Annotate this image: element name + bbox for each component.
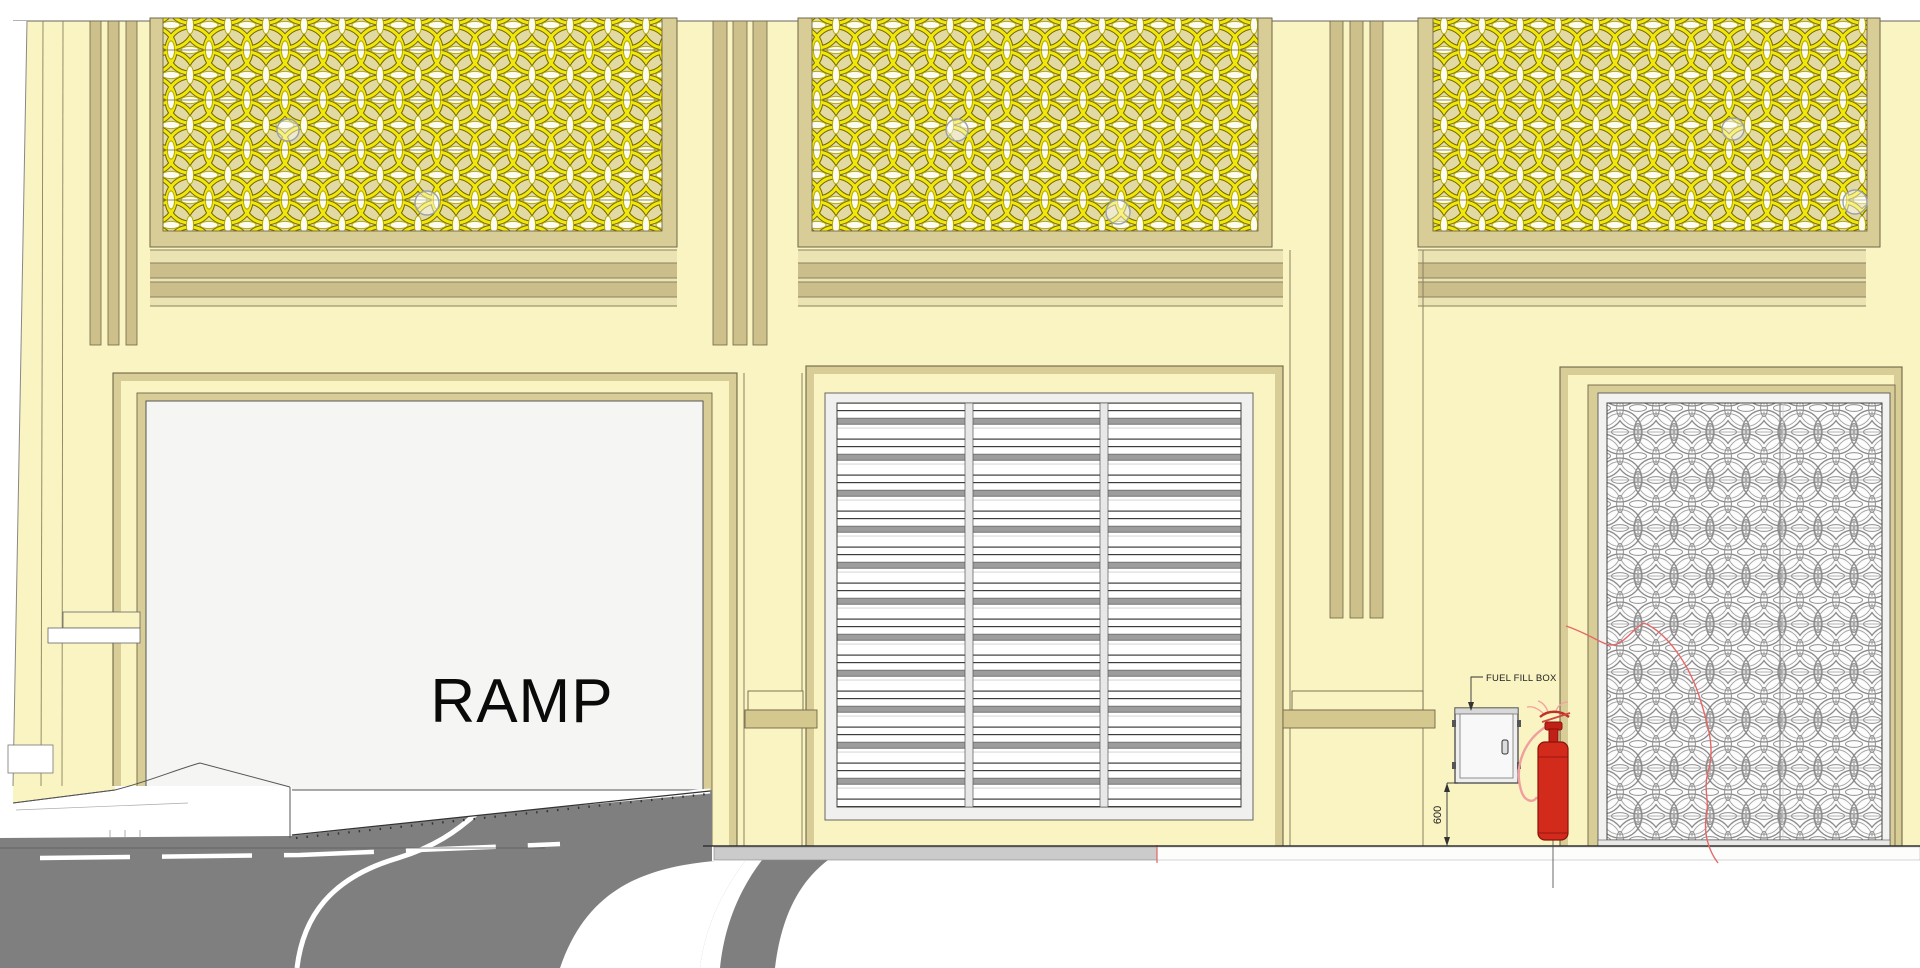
extinguisher-neck (1549, 729, 1558, 743)
ramp-label: RAMP (430, 667, 613, 736)
fuel-box-handle (1502, 740, 1508, 754)
threshold-strip (1157, 847, 1920, 860)
louver-bay (806, 366, 1283, 846)
decorative-panel-middle (798, 18, 1272, 247)
screen-door-panel (1607, 403, 1882, 840)
pilaster-pedestal-right (1283, 691, 1435, 728)
facade-elevation-svg: RAMP (0, 0, 1920, 968)
fuel-fill-box-label: FUEL FILL BOX (1486, 673, 1557, 684)
cornice-band-bay-left (150, 250, 677, 306)
panel-fixture-circle (415, 191, 439, 215)
decorative-panel-left (150, 18, 677, 247)
louver-mullion (965, 403, 973, 807)
curb-strip (714, 847, 1157, 860)
left-jamb-step-upper (63, 612, 140, 628)
panel-fixture-circle (277, 119, 299, 141)
panel-fixture-circle (946, 119, 968, 141)
door-sill (1598, 840, 1890, 846)
panel-fixture-circle (1106, 200, 1130, 224)
elevation-drawing: RAMP (0, 0, 1920, 968)
panel-fixture-circle (1722, 118, 1744, 140)
left-jamb-step-lower (48, 628, 140, 643)
louver-panel (837, 403, 1241, 807)
cornice-bands (150, 250, 1866, 306)
fuel-fill-box (1452, 708, 1521, 783)
ramp-opening (146, 401, 703, 846)
dimension-600-text: 600 (1432, 806, 1444, 824)
louver-mullion (1100, 403, 1108, 807)
ramp-bay: RAMP (113, 373, 737, 846)
cornice-band-bay-middle (798, 250, 1283, 306)
screen-door-bay (1560, 367, 1902, 846)
cornice-band-bay-right (1418, 250, 1866, 306)
panel-fixture-circle (1843, 190, 1867, 214)
left-jamb-notch (8, 745, 53, 773)
decorative-panel-right (1418, 18, 1880, 247)
